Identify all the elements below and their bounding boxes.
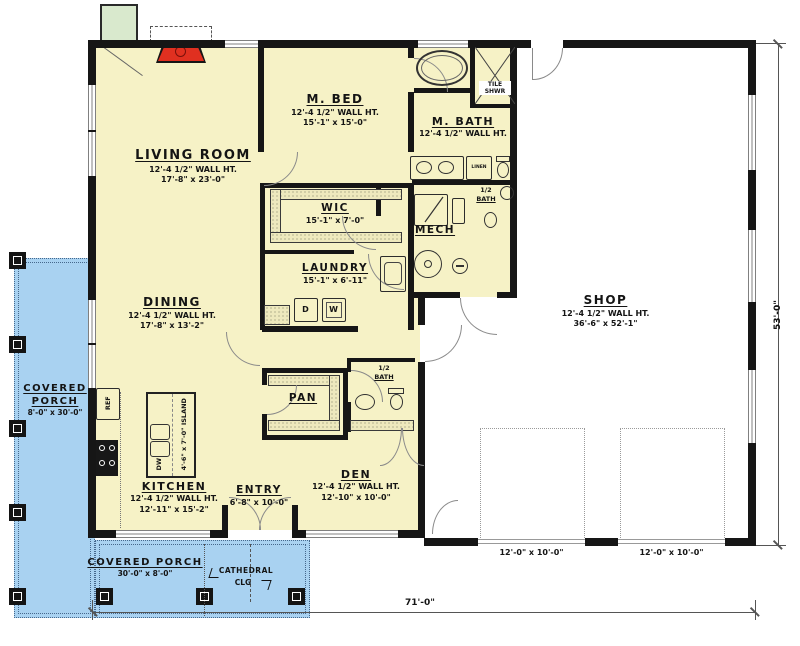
- window: [748, 95, 756, 170]
- porch-post: [9, 252, 26, 269]
- entry-door-opening: [228, 530, 292, 538]
- overall-height-label: 53'-0": [773, 291, 783, 339]
- window: [306, 530, 398, 538]
- mech-label: MECH: [412, 224, 458, 238]
- overall-width-label: 71'-0": [380, 598, 460, 608]
- sink: [355, 394, 375, 410]
- window: [88, 132, 96, 176]
- wall-pan: [262, 368, 348, 373]
- burner: [109, 445, 115, 451]
- garage-door-track: [620, 428, 725, 538]
- island-sink: [150, 424, 170, 440]
- refrigerator-label: REF: [104, 383, 112, 423]
- shop-entry-opening: [531, 40, 563, 48]
- wall-entry-stub: [292, 505, 298, 530]
- wall-shop-bottom: [424, 538, 478, 546]
- den-label: DEN 12'-4 1/2" WALL HT. 12'-10" x 10'-0": [300, 468, 412, 503]
- toilet-bowl: [390, 394, 403, 410]
- washer: W: [322, 298, 346, 322]
- floor-plan: TILESHWR LINEN 1/2BATH D W REF DW 4'-6" …: [0, 0, 800, 646]
- door-leaf: [532, 48, 533, 80]
- laundry-label: LAUNDRY 15'-1" x 6'-11": [284, 262, 386, 286]
- porch-left-label: COVERED PORCH 8'-0" x 30'-0": [21, 382, 89, 418]
- wic-shelving: [270, 189, 402, 200]
- garage-door: [478, 539, 585, 544]
- wall-shop-left: [418, 297, 425, 325]
- garage-door-track: [480, 428, 585, 538]
- water-heater-cap: [424, 260, 432, 268]
- wall-laundry-bottom: [262, 326, 358, 332]
- tile-shower-label: TILESHWR: [479, 81, 511, 95]
- pantry-label: PAN: [282, 392, 324, 406]
- burner: [99, 460, 105, 466]
- wic-shelving: [270, 232, 402, 243]
- window: [116, 530, 210, 538]
- dimension-ext: [756, 545, 786, 546]
- burner: [99, 445, 105, 451]
- window: [88, 345, 96, 388]
- window: [88, 300, 96, 343]
- master-bed-label: M. BED 12'-4 1/2" WALL HT. 15'-1" x 15'-…: [270, 92, 400, 128]
- island-size-label: 4'-6" x 7'-0" ISLAND: [180, 389, 188, 479]
- wall-pan: [262, 435, 348, 440]
- wall-pan: [262, 368, 267, 385]
- mech-panel: [452, 198, 465, 224]
- porch-post: [9, 504, 26, 521]
- wall-shop-bottom: [585, 538, 618, 546]
- door-arc-shop-hall: [425, 325, 462, 362]
- wall-shop-bottom: [725, 538, 756, 546]
- laundry-sink-basin: [384, 262, 402, 285]
- dishwasher-label: DW: [155, 446, 163, 482]
- door-arc-shop-walkdoor: [432, 500, 458, 534]
- window: [748, 370, 756, 443]
- vanity-sink: [438, 161, 454, 174]
- half-bath-lower-label: 1/2BATH: [366, 364, 402, 382]
- toilet-bowl: [497, 162, 509, 178]
- porch-bottom-label: COVERED PORCH 30'-0" x 8'-0": [75, 556, 215, 579]
- window: [88, 85, 96, 130]
- door-arc-mech-shop: [460, 298, 497, 335]
- porch-post: [9, 588, 26, 605]
- living-room-label: LIVING ROOM 12'-4 1/2" WALL HT. 17'-8" x…: [118, 148, 268, 186]
- dryer: D: [294, 298, 318, 322]
- wall-bath-inner: [412, 180, 510, 185]
- cathedral-label: CATHEDRAL: [218, 566, 274, 576]
- porch-post: [288, 588, 305, 605]
- hvac-unit: [414, 194, 448, 226]
- shop-label: SHOP 12'-4 1/2" WALL HT. 36'-6" x 52'-1": [518, 293, 693, 329]
- door-arc-shop-rear: [533, 48, 563, 80]
- vanity-sink: [416, 161, 432, 174]
- bathtub-inner: [421, 55, 463, 81]
- tile-shower: TILESHWR: [475, 47, 515, 104]
- kitchen-label: KITCHEN 12'-4 1/2" WALL HT. 12'-11" x 15…: [108, 480, 240, 515]
- covered-porch-bottom: [95, 540, 310, 618]
- wall-shower: [470, 104, 515, 108]
- linen-closet: LINEN: [466, 156, 492, 180]
- linen-label: LINEN: [467, 165, 491, 171]
- burner: [109, 460, 115, 466]
- garage-door-size: 12'-0" x 10'-0": [618, 548, 725, 557]
- island-divider: [172, 394, 173, 476]
- dimension-line-bottom: [92, 612, 756, 613]
- wall-livingroom-mbed: [258, 47, 264, 152]
- wall-halfbath-top: [347, 358, 415, 362]
- half-bath-upper-label: 1/2BATH: [468, 186, 504, 204]
- wall-mbed-right: [408, 47, 414, 58]
- garage-door-size: 12'-0" x 10'-0": [478, 548, 585, 557]
- dining-label: DINING 12'-4 1/2" WALL HT. 17'-8" x 13'-…: [108, 295, 236, 331]
- window: [418, 40, 468, 48]
- porch-post: [9, 420, 26, 437]
- cathedral-clg-label: CLG: [228, 578, 258, 588]
- master-bath-label: M. BATH 12'-4 1/2" WALL HT.: [413, 115, 513, 140]
- pantry-shelving: [268, 420, 340, 431]
- washer-label: W: [323, 305, 344, 315]
- porch-beam-line: [204, 544, 205, 616]
- window: [225, 40, 258, 48]
- dining-wall-hatch: [264, 305, 290, 325]
- wall-wic-laundry: [262, 250, 354, 254]
- porch-post: [96, 588, 113, 605]
- garage-door: [618, 539, 725, 544]
- dryer-label: D: [295, 305, 316, 315]
- wall-wic-top: [262, 183, 412, 188]
- entry-label: ENTRY 6'-8" x 10'-0": [224, 484, 294, 508]
- wic-label: WIC 15'-1" x 7'-0": [295, 202, 375, 226]
- porch-post: [9, 336, 26, 353]
- wall-wing-bottom: [497, 292, 517, 298]
- window: [748, 230, 756, 302]
- wall-pan: [343, 368, 348, 440]
- floor-drain-slot: [456, 265, 464, 267]
- toilet-bowl: [484, 212, 497, 228]
- dimension-ext: [756, 43, 786, 44]
- sink: [500, 186, 514, 200]
